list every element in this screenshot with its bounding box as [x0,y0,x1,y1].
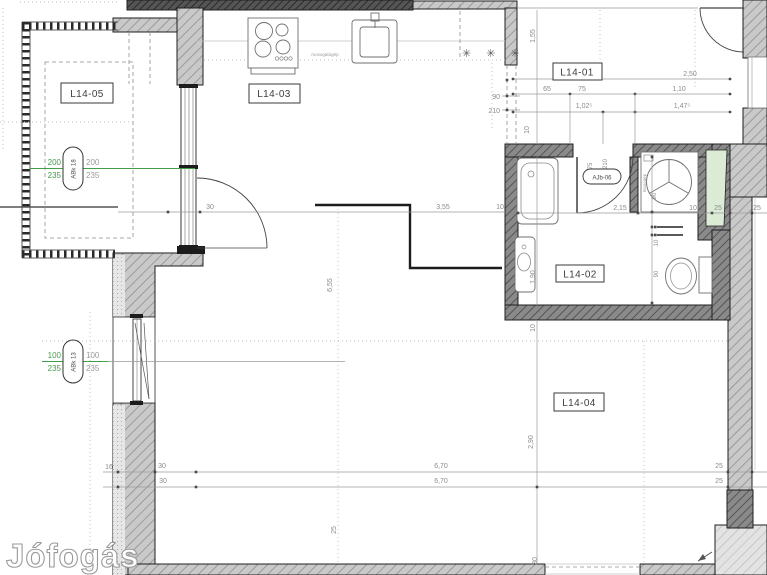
wall-right-main [728,197,752,528]
room-label-l14-02: L14-02 [563,270,597,281]
room-label-l14-03: L14-03 [257,89,291,100]
wall-right-pillar [727,490,753,528]
dim-190: 1,90 [530,270,537,284]
pn3 [506,109,509,112]
bn4 [651,234,654,237]
hn10 [729,111,732,114]
floor-plan-svg: ✳ ✳ ✳ mosogatógép mosógép AJb-06 75 210 [0,0,767,575]
bln2 [154,471,157,474]
dim-10b: 10 [689,205,697,212]
window-cap-top [130,314,143,318]
wall-top-dark [127,0,413,10]
dim-25a: 25 [714,205,722,212]
dim-rail-10: 10 [654,239,660,246]
n5 [711,212,714,215]
toilet-tank [699,257,712,293]
room-label-l14-04: L14-04 [562,398,596,409]
dim-v30: 30 [532,557,539,565]
bln7 [195,486,198,489]
bln3 [195,471,198,474]
wall-bath-bottom [505,305,730,320]
wall-balcony-top [113,18,177,32]
dim-25c: 25 [715,463,723,470]
bln5 [751,471,754,474]
rail-node-2 [654,234,657,237]
bln6 [117,486,120,489]
window-shaft-green [706,150,727,226]
dim-75: 75 [578,86,586,93]
window-abk13-assembly [113,314,155,405]
dim-30-door: 30 [206,204,214,211]
dim-30b: 30 [159,478,167,485]
tag18-id: ABk 18 [72,159,78,179]
dim-25b: 25 [753,205,761,212]
dim-110: 1,10 [672,86,686,93]
dim-65: 65 [543,86,551,93]
bln1 [117,471,120,474]
dim-25d: 25 [715,478,723,485]
wall-top-kitchen [413,1,517,9]
hn6 [729,93,732,96]
bln8 [536,486,539,489]
tag18-gray-w: 200 [86,158,100,167]
bn3 [651,226,654,229]
dim-wc-90: 90 [654,270,660,277]
dim-155: 1,55 [530,29,537,43]
bathtub [517,158,558,224]
dim-215: 2,15 [613,205,627,212]
dishwasher-label: mosogatógép [311,52,339,57]
n1 [167,211,170,214]
wall-bath-left [505,144,518,320]
bn2 [651,211,654,214]
bln4 [727,471,730,474]
dim-670b: 6,70 [434,478,448,485]
shaft-box [748,57,767,108]
washer-label: mosógép [642,173,647,192]
bln9 [727,486,730,489]
bn5 [651,302,654,305]
dim-v25: 25 [331,526,338,534]
hn1 [512,78,515,81]
room-label-l14-01: L14-01 [560,68,594,79]
dim-v10: 10 [530,324,537,332]
oven-tray [251,68,295,74]
dim-355: 3,55 [436,204,450,211]
dim-hall-10: 10 [524,126,531,134]
hn3 [512,93,515,96]
bn1 [651,156,654,159]
tag13-gray-w: 100 [86,351,100,360]
dim-670a: 6,70 [434,463,448,470]
frame-cap-1 [179,84,198,88]
wall-right-mid [730,144,767,197]
dim-wm-90: 90 [652,192,658,199]
tag18-gray-h: 235 [86,171,100,180]
dim-655: 6,55 [327,278,334,292]
wall-insulation-a [113,255,125,317]
frame-cap-3 [179,245,198,250]
wall-bath-right [712,230,730,320]
tag13-green-w: 100 [48,351,62,360]
rail-node-1 [654,226,657,229]
tag18-green-w: 200 [48,158,62,167]
n2 [199,211,202,214]
room-label-l14-05: L14-05 [70,89,104,100]
wall-corner-light [715,525,767,575]
door-height-dim: 210 [603,158,609,169]
door-tag-label: AJb-06 [592,176,612,182]
wall-bath-partition [630,157,638,212]
fridge-symbol: ✳ ✳ ✳ [462,48,526,60]
dim-30a: 30 [158,463,166,470]
tag13-id: ABk 13 [72,352,78,372]
wall-right-upper [743,108,767,144]
floor-plan-page: ✳ ✳ ✳ mosogatógép mosógép AJb-06 75 210 [0,0,767,575]
door-width-dim: 75 [588,162,594,169]
pn2 [506,95,509,98]
n4 [637,212,640,215]
n7 [751,212,754,215]
wall-bottom-left [128,564,545,575]
dim-1475: 1,47⁵ [674,103,691,110]
dim-pass-210: 210 [488,108,500,115]
dim-pass-90: 90 [492,94,500,101]
hn2 [729,78,732,81]
n3 [517,212,520,215]
n6 [729,212,732,215]
tag13-gray-h: 235 [86,364,100,373]
wall-column [177,8,203,85]
dim-16: 16 [105,464,113,471]
pn1 [506,79,509,82]
dim-10a: 10 [496,204,504,211]
tag18-green-h: 235 [48,171,62,180]
dim-290: 2,90 [528,435,535,449]
dim-250: 2,50 [683,71,697,78]
window-cap-bottom [130,401,143,405]
watermark-logo: Jófogás [6,537,140,574]
tag13-green-h: 235 [48,364,62,373]
dim-1025: 1,02⁵ [576,103,593,110]
wall-bath-top-a [505,144,573,157]
wall-right-top [743,0,767,58]
hn7 [512,111,515,114]
